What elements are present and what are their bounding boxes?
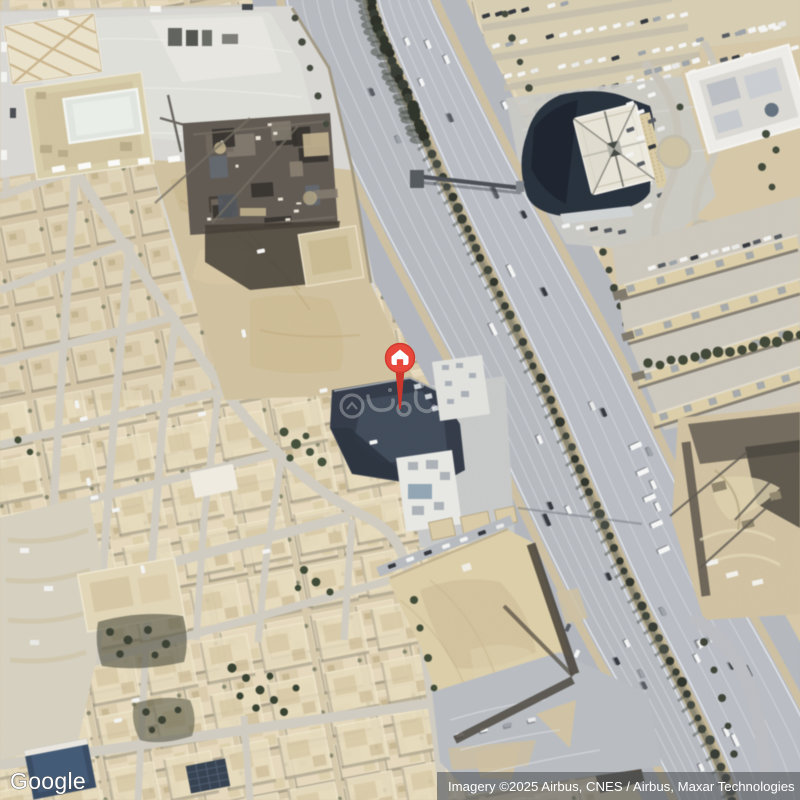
svg-text:Google: Google — [10, 768, 86, 794]
svg-text:Imagery ©2025 Airbus, CNES / A: Imagery ©2025 Airbus, CNES / Airbus, Max… — [448, 779, 795, 794]
